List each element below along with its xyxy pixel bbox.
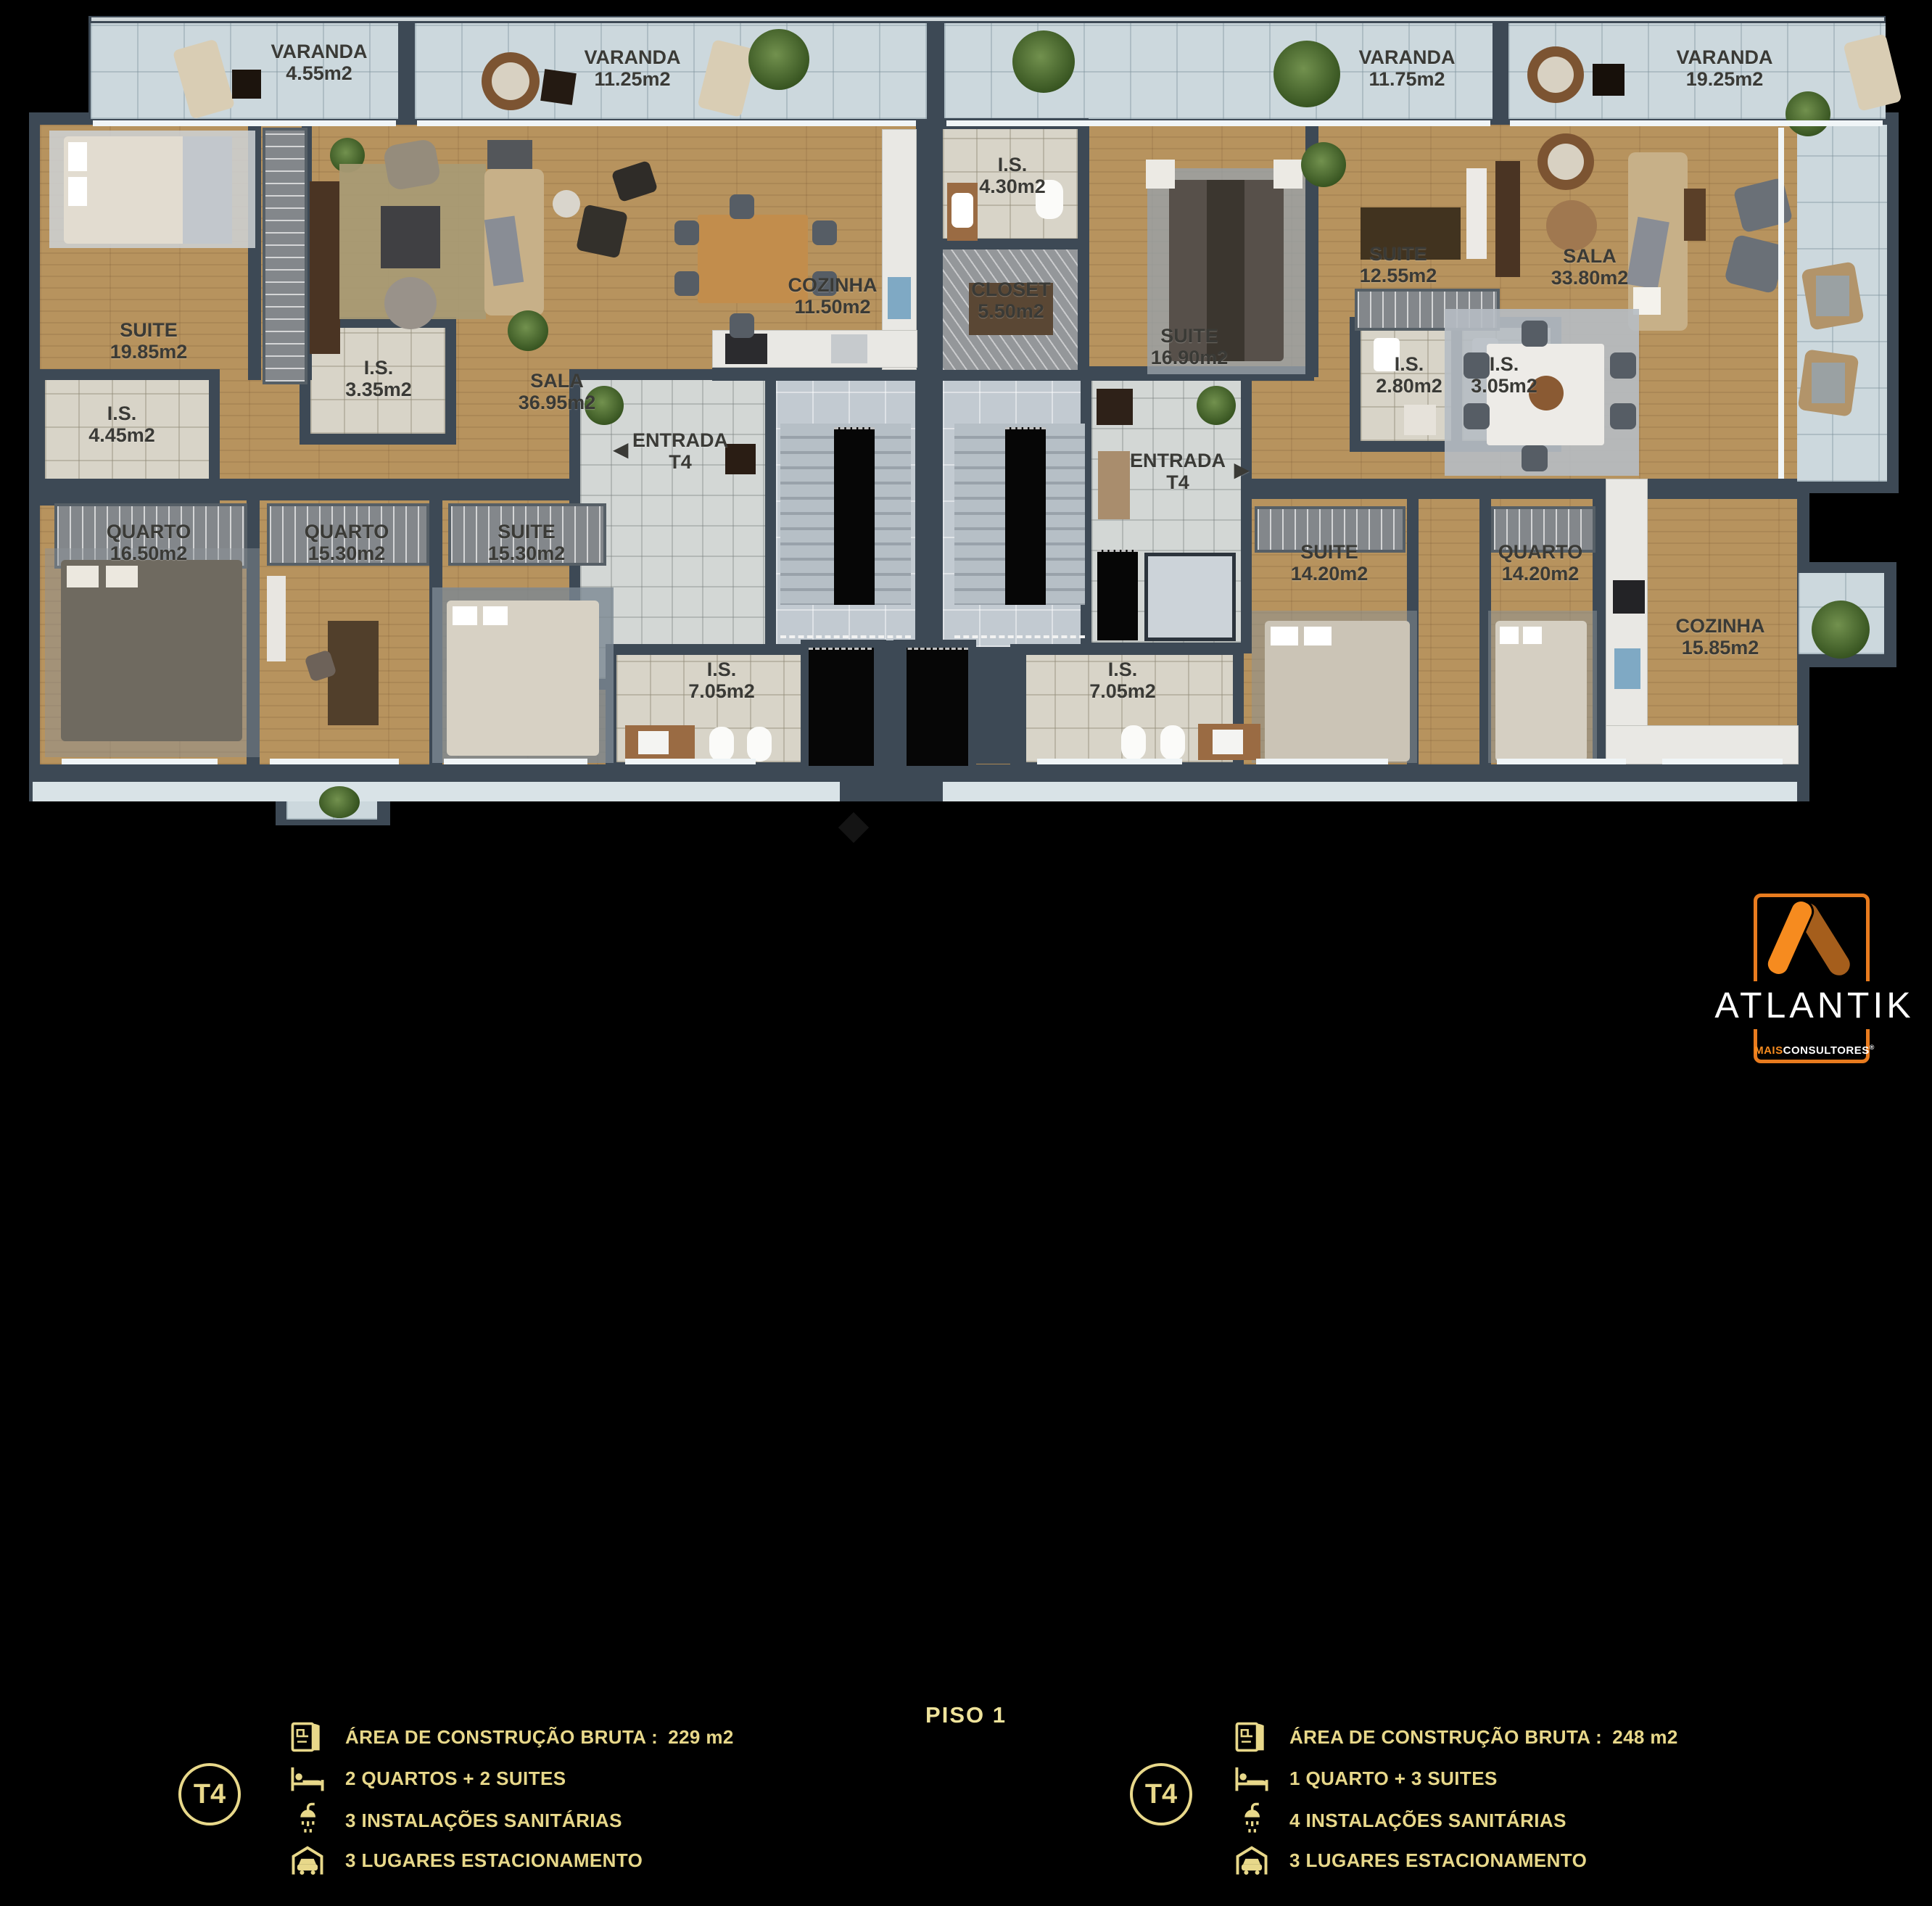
logo-subtitle-bold: MAIS (1754, 1044, 1783, 1057)
label-varanda-1125: VARANDA11.25m2 (585, 46, 681, 90)
egg-chair-cushion (492, 62, 529, 100)
legend-right-row-bedrooms: 1 QUARTO + 3 SUITES (1233, 1759, 1498, 1798)
stair-right-fence (954, 635, 1085, 643)
window (1497, 759, 1626, 764)
label-is-705-right: I.S.7.05m2 (1089, 659, 1156, 702)
coffee-table (1684, 189, 1706, 241)
round-rug (1546, 200, 1597, 251)
kitchen-counter-right-unit (1606, 479, 1648, 764)
shelf (1495, 161, 1520, 277)
entrance-arrow-left: ◀ (614, 439, 628, 460)
sideboard (310, 181, 340, 354)
shower-icon (1233, 1802, 1271, 1839)
chair (812, 220, 837, 245)
pillow (106, 566, 138, 587)
toilet (747, 727, 772, 762)
label-varanda-1175: VARANDA11.75m2 (1359, 46, 1456, 90)
label-quarto-1420: QUARTO14.20m2 (1498, 541, 1583, 585)
stair-right-void (1005, 427, 1046, 605)
label-entrada-left: ENTRADAT4 (632, 429, 728, 473)
pillow (1304, 627, 1332, 645)
window (1778, 128, 1784, 479)
side-table (553, 190, 580, 218)
coffee-table (381, 206, 440, 268)
area-label: ÁREA DE CONSTRUÇÃO BRUTA : (345, 1726, 658, 1748)
island (1466, 168, 1487, 259)
black-box (232, 70, 261, 99)
plant (1301, 142, 1346, 187)
tv-console (487, 140, 532, 169)
window (93, 120, 396, 126)
plant (319, 786, 360, 818)
oven-left-unit (831, 334, 867, 363)
dresser (267, 576, 286, 661)
legend-left-row-bedrooms: 2 QUARTOS + 2 SUITES (289, 1759, 566, 1798)
egg-chair-cushion (1548, 144, 1584, 180)
basin (951, 193, 973, 228)
pillow (1523, 627, 1542, 644)
toilet (1160, 725, 1185, 760)
walkway-left (33, 782, 840, 801)
footer: PISO 1 T4 ÁREA DE CONSTRUÇÃO BRUTA :229 … (0, 823, 1932, 1097)
legend-right-row-bathrooms: 4 INSTALAÇÕES SANITÁRIAS (1233, 1801, 1566, 1840)
label-is-705-left: I.S.7.05m2 (688, 659, 755, 702)
unit-badge-right-label: T4 (1145, 1779, 1177, 1810)
elevator-shaft (1097, 550, 1138, 640)
plant (1812, 601, 1870, 659)
label-suite-1420: SUITE14.20m2 (1291, 541, 1368, 585)
deck-chair-cushion (1816, 276, 1849, 316)
legend-left-row-area: ÁREA DE CONSTRUÇÃO BRUTA :229 m2 (289, 1717, 734, 1757)
chair (674, 271, 699, 296)
window (444, 759, 587, 764)
label-suite-1690: SUITE16.90m2 (1151, 325, 1229, 368)
area-value: 229 m2 (668, 1726, 734, 1748)
cube-table (540, 69, 577, 105)
window (946, 120, 1490, 126)
console (725, 444, 756, 474)
bathrooms-text: 3 INSTALAÇÕES SANITÁRIAS (345, 1810, 622, 1832)
label-suite-1985: SUITE19.85m2 (110, 319, 188, 363)
bedrooms-text: 2 QUARTOS + 2 SUITES (345, 1767, 566, 1790)
garage-car-icon (289, 1841, 326, 1879)
wall-closet-suite (1078, 125, 1089, 377)
legend-left-row-bathrooms: 3 INSTALAÇÕES SANITÁRIAS (289, 1801, 622, 1840)
area-label: ÁREA DE CONSTRUÇÃO BRUTA : (1289, 1726, 1602, 1748)
garage-car-icon (1233, 1841, 1271, 1879)
nightstand (1273, 160, 1303, 189)
kitchen-sink-left-unit (888, 277, 911, 319)
bench (1098, 451, 1130, 519)
area-value: 248 m2 (1612, 1726, 1678, 1748)
pillow (68, 142, 87, 171)
bed-icon (1233, 1759, 1271, 1797)
shower-tray (1404, 405, 1436, 435)
label-is-445: I.S.4.45m2 (88, 403, 155, 446)
label-varanda-1925: VARANDA19.25m2 (1677, 46, 1773, 90)
label-cozinha-1150: COZINHA11.50m2 (788, 274, 878, 318)
nightstand (1146, 160, 1175, 189)
label-suite-1255: SUITE12.55m2 (1360, 243, 1437, 286)
unit-badge-left-label: T4 (194, 1779, 226, 1810)
legend-right-row-parking: 3 LUGARES ESTACIONAMENTO (1233, 1841, 1587, 1880)
label-cozinha-1585: COZINHA15.85m2 (1676, 615, 1765, 659)
wardrobe-corridor (263, 128, 307, 384)
label-is-280: I.S.2.80m2 (1376, 353, 1442, 397)
plant (748, 29, 809, 90)
pillow (1500, 627, 1519, 644)
bathrooms-text: 4 INSTALAÇÕES SANITÁRIAS (1289, 1810, 1566, 1832)
blueprint-icon (1233, 1718, 1271, 1756)
label-quarto-1650: QUARTO16.50m2 (107, 521, 191, 564)
window (625, 759, 756, 764)
label-closet-550: CLOSET5.50m2 (971, 279, 1051, 322)
wall-shaft-right-side (968, 648, 1026, 764)
mask-top-left (29, 16, 88, 112)
unit-badge-right: T4 (1130, 1763, 1192, 1825)
label-sala-3695: SALA36.95m2 (519, 370, 596, 413)
black-box (1593, 64, 1625, 96)
label-varanda-455: VARANDA4.55m2 (271, 41, 368, 84)
label-suite-1530: SUITE15.30m2 (488, 521, 566, 564)
desk (328, 621, 379, 725)
egg-chair-cushion (1537, 57, 1574, 93)
label-is-335: I.S.3.35m2 (345, 357, 412, 400)
plant (508, 310, 548, 351)
bed-icon (289, 1759, 326, 1797)
bedrooms-text: 1 QUARTO + 3 SUITES (1289, 1767, 1498, 1790)
chair (1610, 403, 1636, 429)
basin (638, 731, 669, 754)
pouf (384, 277, 437, 329)
walkway-right (943, 782, 1797, 801)
window (1037, 759, 1182, 764)
plant (1273, 41, 1340, 107)
shaft-left (809, 648, 878, 766)
pillow (483, 606, 508, 625)
pillow (453, 606, 477, 625)
atlantik-logo: ATLANTIK MAISCONSULTORES® (1697, 888, 1932, 1097)
stair-left-void (834, 427, 875, 605)
legend-right: ÁREA DE CONSTRUÇÃO BRUTA :248 m2 1 QUART… (1233, 1717, 1886, 1906)
chair (1464, 403, 1490, 429)
window (1510, 120, 1883, 126)
legend-right-row-area: ÁREA DE CONSTRUÇÃO BRUTA :248 m2 (1233, 1717, 1678, 1757)
deck-chair-cushion (1812, 363, 1845, 403)
pillow (67, 566, 99, 587)
logo-subtitle-rest: CONSULTORES (1783, 1044, 1870, 1057)
wall-shaft-mid (874, 640, 907, 771)
parking-text: 3 LUGARES ESTACIONAMENTO (345, 1849, 643, 1872)
chair (730, 313, 754, 338)
chair (730, 194, 754, 219)
chair (674, 220, 699, 245)
plant (1197, 386, 1236, 425)
pillow (68, 177, 87, 206)
legend-left: ÁREA DE CONSTRUÇÃO BRUTA :229 m2 2 QUART… (289, 1717, 941, 1906)
blueprint-icon (289, 1718, 326, 1756)
basin (1213, 730, 1243, 754)
toilet (709, 727, 734, 762)
chair (1522, 445, 1548, 471)
pillow (1271, 627, 1298, 645)
blanket (183, 136, 232, 244)
window (1256, 759, 1388, 764)
shaft-right (901, 648, 968, 766)
shower-icon (289, 1802, 326, 1839)
label-is-305: I.S.3.05m2 (1471, 353, 1537, 397)
window (1662, 759, 1783, 764)
unit-badge-left: T4 (178, 1763, 241, 1825)
label-sala-3380: SALA33.80m2 (1551, 245, 1629, 289)
label-quarto-1530: QUARTO15.30m2 (305, 521, 389, 564)
toilet (1121, 725, 1146, 760)
entrance-arrow-right: ▶ (1234, 459, 1249, 480)
registered-mark: ® (1870, 1044, 1875, 1051)
plant (1012, 30, 1075, 93)
window (417, 120, 916, 126)
label-is-430: I.S.4.30m2 (979, 154, 1046, 197)
art (1097, 389, 1133, 425)
logo-subtitle: MAISCONSULTORES® (1742, 1044, 1887, 1057)
logo-wordmark: ATLANTIK (1701, 981, 1928, 1029)
elevator-car (1144, 553, 1236, 641)
wall-bedrooms-top-left (40, 479, 580, 500)
parking-text: 3 LUGARES ESTACIONAMENTO (1289, 1849, 1587, 1872)
chair (1522, 321, 1548, 347)
kitchen-sink-right-unit (1614, 648, 1640, 689)
window (270, 759, 399, 764)
legend-left-row-parking: 3 LUGARES ESTACIONAMENTO (289, 1841, 643, 1880)
plant (1786, 91, 1830, 136)
wall-bedrooms-top-right (1244, 479, 1797, 499)
cooktop-left-unit (725, 334, 767, 364)
window (62, 759, 218, 764)
railing-top (91, 17, 1884, 21)
chair (1610, 352, 1636, 379)
cooktop-right-unit (1613, 580, 1645, 614)
label-entrada-right: ENTRADAT4 (1130, 450, 1226, 493)
